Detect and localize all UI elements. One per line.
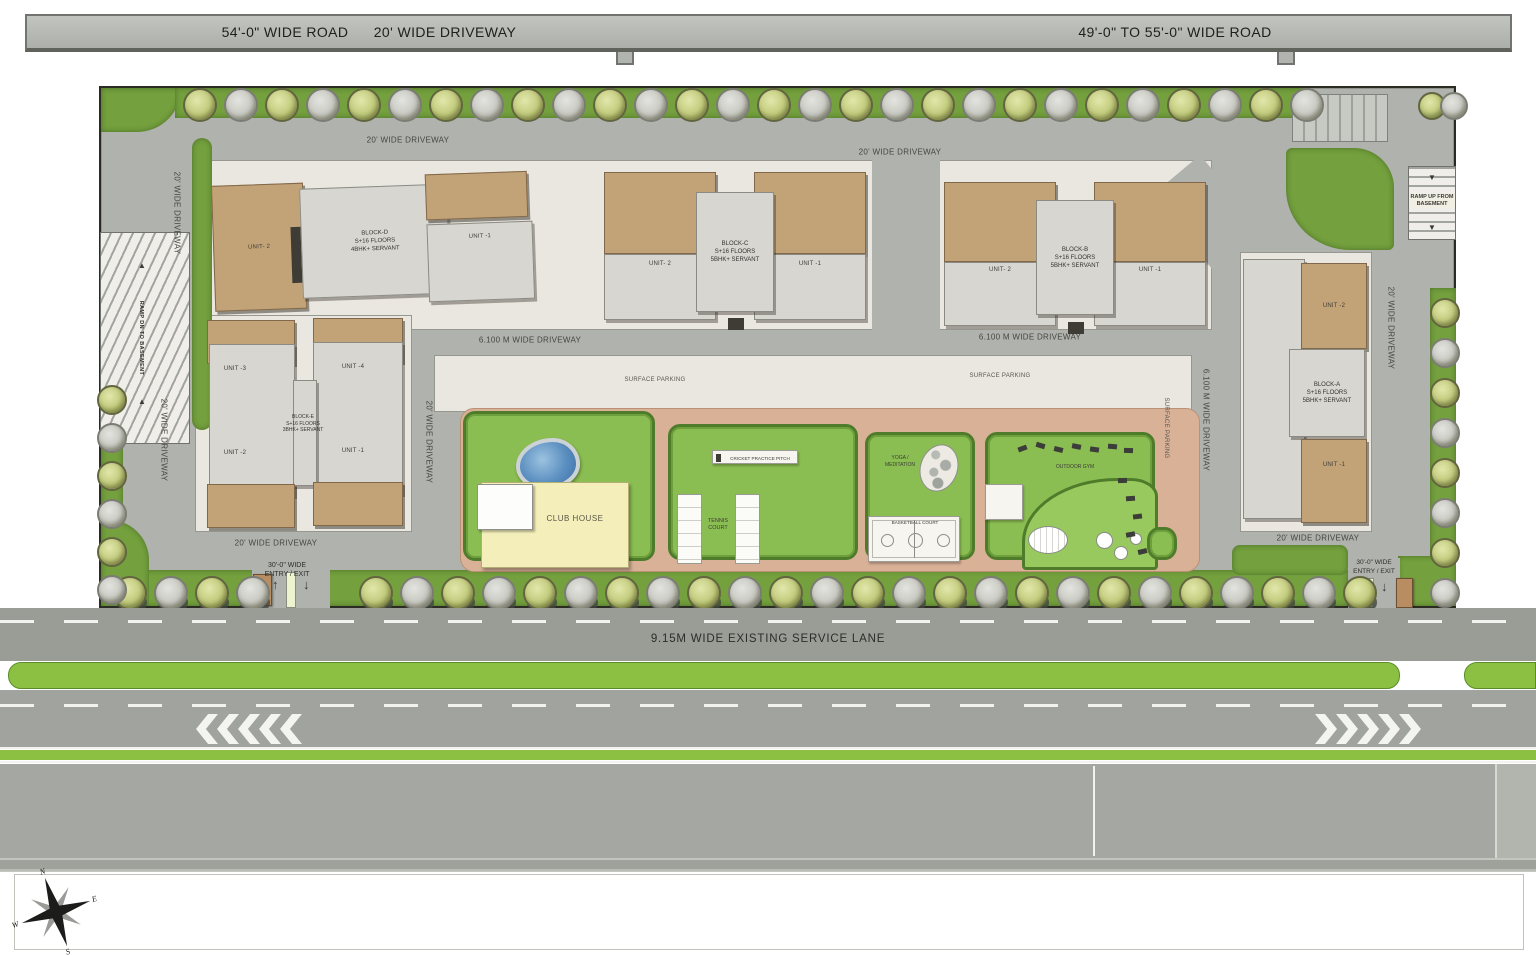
tree-icon xyxy=(1290,88,1324,122)
lane-marking xyxy=(0,704,1536,707)
tree-icon xyxy=(1085,88,1119,122)
tree-icon xyxy=(97,537,127,567)
entry-arrow-down-icon: ↓ xyxy=(303,578,310,591)
unit-label: UNIT -3 xyxy=(200,366,270,372)
tree-icon xyxy=(1056,576,1090,610)
tree-icon xyxy=(757,88,791,122)
tree-icon xyxy=(974,576,1008,610)
tree-icon xyxy=(236,576,270,610)
tree-icon xyxy=(769,576,803,610)
tree-icon xyxy=(1430,498,1460,528)
unit-label: UNIT -1 xyxy=(318,448,388,454)
entry-exit-left-label: 30'-0" WIDEENTRY / EXIT xyxy=(249,561,325,579)
ramp-arrow-icon: ▼ xyxy=(1428,224,1436,232)
gym-equipment-icon xyxy=(1118,478,1127,483)
block-c-core: BLOCK-CS+16 FLOORS5BHK+ SERVANT xyxy=(696,192,774,312)
tree-icon xyxy=(1044,88,1078,122)
tree-icon xyxy=(1138,576,1172,610)
block-e-corner-bl xyxy=(207,484,295,528)
tree-icon xyxy=(1015,576,1049,610)
tree-icon xyxy=(728,576,762,610)
cricket-practice-pitch: CRICKET PRACTICE PITCH xyxy=(712,450,798,464)
gym-equipment-icon xyxy=(1108,444,1117,450)
tree-icon xyxy=(1430,458,1460,488)
block-d-unit1-wing: UNIT -1 xyxy=(426,221,535,303)
block-a-unit2-wing: UNIT -2 xyxy=(1301,263,1367,349)
ramp-arrow-icon: ▲ xyxy=(138,262,146,270)
basketball-center-circle xyxy=(908,533,923,548)
tree-icon xyxy=(1430,378,1460,408)
tree-icon xyxy=(1126,88,1160,122)
block-b-core-label: BLOCK-BS+16 FLOORS5BHK+ SERVANT xyxy=(1037,246,1113,270)
tree-icon xyxy=(441,576,475,610)
tree-icon xyxy=(511,88,545,122)
block-a-unit1-wing: UNIT -1 xyxy=(1301,439,1367,523)
driveway-label: 6.100 M WIDE DRIVEWAY xyxy=(479,336,581,345)
top-driveway-label: 20' WIDE DRIVEWAY xyxy=(340,24,550,40)
tree-icon xyxy=(1261,576,1295,610)
block-a-core-label: BLOCK-AS+16 FLOORS5BHK+ SERVANT xyxy=(1290,381,1364,405)
tree-icon xyxy=(154,576,188,610)
gym-equipment-icon xyxy=(1124,448,1133,453)
surface-parking-label: SURFACE PARKING xyxy=(624,377,685,383)
playground-equipment xyxy=(1096,532,1113,549)
tree-icon xyxy=(470,88,504,122)
service-lane-label: 9.15M WIDE EXISTING SERVICE LANE xyxy=(0,633,1536,645)
block-e-core-label: BLOCK-ES+16 FLOORS3BHK+ SERVANT xyxy=(263,414,343,434)
tree-icon xyxy=(687,576,721,610)
tree-icon xyxy=(400,576,434,610)
tree-icon xyxy=(1167,88,1201,122)
road-notch xyxy=(1277,52,1295,65)
tree-icon xyxy=(97,423,127,453)
lane-marking xyxy=(0,620,1536,623)
tree-icon xyxy=(646,576,680,610)
cricket-pitch-label: CRICKET PRACTICE PITCH xyxy=(723,456,797,461)
tree-icon xyxy=(1430,578,1460,608)
tree-icon xyxy=(97,499,127,529)
tree-icon xyxy=(224,88,258,122)
tree-icon xyxy=(564,576,598,610)
surface-parking-strip xyxy=(434,355,1192,412)
tree-icon xyxy=(183,88,217,122)
tree-icon xyxy=(1097,576,1131,610)
tree-icon xyxy=(851,576,885,610)
driveway-label: 20' WIDE DRIVEWAY xyxy=(1387,287,1396,370)
road-median-green xyxy=(8,662,1400,689)
entry-arrow-up-icon: ↑ xyxy=(272,578,279,591)
ramp-up-label: RAMP UP FROMBASEMENT xyxy=(1409,194,1455,208)
entry-arrow-down-icon: ↓ xyxy=(1381,580,1388,593)
outdoor-gym-label: OUTDOOR GYM xyxy=(1040,464,1110,470)
basketball-key-circle xyxy=(937,534,950,547)
block-e-corner-br xyxy=(313,482,403,526)
unit-label: UNIT -1 xyxy=(428,232,532,242)
tree-icon xyxy=(347,88,381,122)
surface-parking-label: SURFACE PARKING xyxy=(1163,397,1169,458)
guard-booth-right xyxy=(1396,578,1413,608)
side-road-edge xyxy=(1495,764,1536,858)
tree-icon xyxy=(429,88,463,122)
basketball-court-label: BASKETBALL COURT xyxy=(869,520,961,525)
driveway-label: 20' WIDE DRIVEWAY xyxy=(425,401,434,484)
tree-icon xyxy=(97,461,127,491)
tree-icon xyxy=(1430,418,1460,448)
green-patch-bottom-right xyxy=(1232,545,1348,575)
gym-equipment-icon xyxy=(1133,513,1143,519)
tree-icon xyxy=(798,88,832,122)
gym-equipment-icon xyxy=(1090,446,1100,452)
tree-icon xyxy=(1430,338,1460,368)
road-edge-line xyxy=(0,747,1536,749)
tree-icon xyxy=(921,88,955,122)
cricket-wicket-icon xyxy=(716,454,721,462)
tree-icon xyxy=(1249,88,1283,122)
tree-icon xyxy=(593,88,627,122)
tree-icon xyxy=(1003,88,1037,122)
tree-icon xyxy=(359,576,393,610)
block-a-core: BLOCK-AS+16 FLOORS5BHK+ SERVANT xyxy=(1289,349,1365,437)
tree-icon xyxy=(97,385,127,415)
basketball-key-circle xyxy=(881,534,894,547)
ramp-down-label: RAMP DN TO BASEMENT xyxy=(138,301,144,376)
unit-label: UNIT -2 xyxy=(200,450,270,456)
block-c-core-label: BLOCK-CS+16 FLOORS5BHK+ SERVANT xyxy=(697,240,773,264)
club-house-annex xyxy=(477,484,533,530)
tree-icon xyxy=(1179,576,1213,610)
block-e: UNIT -3 UNIT -4 UNIT -2 UNIT -1 BLOCK-ES… xyxy=(197,318,411,530)
tree-icon xyxy=(97,575,127,605)
tree-icon xyxy=(605,576,639,610)
tree-icon xyxy=(195,576,229,610)
top-road-right-label: 49'-0" TO 55'-0" WIDE ROAD xyxy=(1060,24,1290,40)
green-patch-small xyxy=(1147,527,1177,560)
tree-icon xyxy=(962,88,996,122)
block-c: UNIT- 2 UNIT -1 BLOCK-CS+16 FLOORS5BHK+ … xyxy=(600,158,870,333)
surface-parking-label: SURFACE PARKING xyxy=(969,373,1030,379)
driveway-label: 20' WIDE DRIVEWAY xyxy=(235,539,318,548)
unit-label: UNIT -1 xyxy=(1302,462,1366,468)
site-plan-page: 54'-0" WIDE ROAD 20' WIDE DRIVEWAY 49'-0… xyxy=(0,0,1536,955)
driveway-label: 20' WIDE DRIVEWAY xyxy=(160,399,169,482)
main-road-lower xyxy=(0,764,1536,858)
lane-line xyxy=(1093,766,1095,856)
multipurpose-court xyxy=(985,484,1023,520)
ramp-arrow-icon: ▲ xyxy=(138,398,146,406)
road-shoulder-band xyxy=(0,858,1536,871)
road-divider-green xyxy=(0,750,1536,760)
tree-icon xyxy=(265,88,299,122)
tree-icon xyxy=(1440,92,1468,120)
driveway-label: 6.100 M WIDE DRIVEWAY xyxy=(1202,369,1211,471)
tree-icon xyxy=(675,88,709,122)
tree-icon xyxy=(1302,576,1336,610)
road-edge-line xyxy=(0,761,1536,763)
title-strip-frame xyxy=(14,874,1524,950)
tennis-court-label: TENNISCOURT xyxy=(695,518,741,532)
tree-icon xyxy=(523,576,557,610)
block-d-unit1-upper xyxy=(425,171,529,221)
tree-icon xyxy=(839,88,873,122)
block-d: UNIT- 2 BLOCK-DS+16 FLOORS4BHK+ SERVANT … xyxy=(202,160,557,322)
yoga-meditation-label: YOGA /MEDITATION xyxy=(876,455,924,468)
playground-equipment xyxy=(1114,546,1128,560)
block-b-core: BLOCK-BS+16 FLOORS5BHK+ SERVANT xyxy=(1036,200,1114,315)
road-notch xyxy=(616,52,634,65)
tree-icon xyxy=(880,88,914,122)
gym-equipment-icon xyxy=(1126,496,1135,502)
driveway-label: 20' WIDE DRIVEWAY xyxy=(173,172,182,255)
tree-icon xyxy=(1208,88,1242,122)
tree-icon xyxy=(1430,298,1460,328)
driveway-label: 6.100 M WIDE DRIVEWAY xyxy=(979,333,1081,342)
driveway-label: 20' WIDE DRIVEWAY xyxy=(1277,534,1360,543)
block-b: UNIT- 2 UNIT -1 BLOCK-BS+16 FLOORS5BHK+ … xyxy=(940,170,1210,340)
tree-icon xyxy=(552,88,586,122)
unit-label: UNIT -4 xyxy=(318,364,388,370)
road-median-green xyxy=(1464,662,1536,689)
block-c-stair xyxy=(728,318,744,330)
entry-exit-right-label: 30'-0" WIDEENTRY / EXIT xyxy=(1344,558,1404,576)
playground-dome-climber xyxy=(1028,526,1068,554)
tree-icon xyxy=(482,576,516,610)
driveway-gap xyxy=(872,160,940,330)
driveway-label: 20' WIDE DRIVEWAY xyxy=(367,136,450,145)
tree-icon xyxy=(1343,576,1377,610)
tree-icon xyxy=(716,88,750,122)
tree-icon xyxy=(306,88,340,122)
driveway-label: 20' WIDE DRIVEWAY xyxy=(859,148,942,157)
club-house-label: CLUB HOUSE xyxy=(520,514,630,523)
basketball-court: BASKETBALL COURT xyxy=(868,516,960,562)
tree-icon xyxy=(388,88,422,122)
tree-icon xyxy=(634,88,668,122)
unit-label: UNIT -2 xyxy=(1302,303,1366,309)
tree-icon xyxy=(1220,576,1254,610)
block-a: UNIT -2 BLOCK-AS+16 FLOORS5BHK+ SERVANT … xyxy=(1243,253,1373,525)
tree-icon xyxy=(810,576,844,610)
ramp-arrow-icon: ▼ xyxy=(1428,174,1436,182)
tree-icon xyxy=(933,576,967,610)
tree-icon xyxy=(892,576,926,610)
tree-icon xyxy=(1430,538,1460,568)
